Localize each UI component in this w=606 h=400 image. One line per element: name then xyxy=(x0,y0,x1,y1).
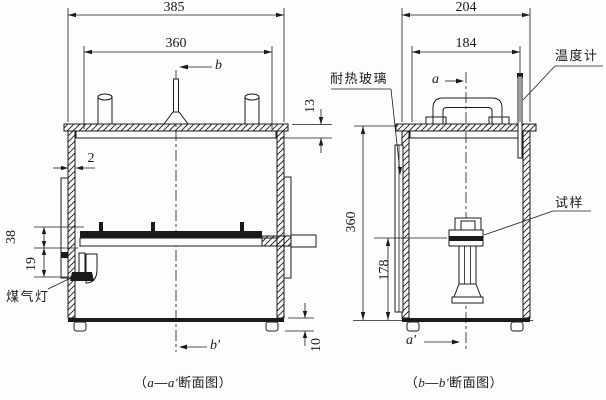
specimen-holder-base xyxy=(452,297,483,303)
vent-pipe-right xyxy=(245,97,259,124)
funnel-stem xyxy=(174,79,179,112)
dim-shelf-drop: 38 xyxy=(5,230,19,244)
dim-wall-thickness: 2 xyxy=(88,152,95,166)
drawing-linework xyxy=(0,0,606,400)
left-view-foot-left xyxy=(74,322,86,331)
left-view-foot-right xyxy=(266,322,278,331)
dim-burner-drop: 19 xyxy=(25,257,39,271)
dim-overall-width-left: 385 xyxy=(164,1,185,15)
left-view-chamber xyxy=(61,70,316,352)
caption-a-s2: a' xyxy=(168,375,178,390)
technical-drawing-combustion-test-chamber: 385 360 b 13 2 38 19 煤气灯 10 b' 204 184 温… xyxy=(0,0,606,400)
label-heat-glass: 耐热玻璃 xyxy=(330,72,388,85)
left-view-left-wall xyxy=(68,131,75,318)
caption-a-s1: a xyxy=(147,375,154,390)
label-thermometer: 温度计 xyxy=(555,49,599,62)
thermometer-leader xyxy=(523,66,555,100)
glass-panel-left-edge xyxy=(61,178,68,278)
shelf-pin-3 xyxy=(240,222,244,231)
dim-inner-width-left: 360 xyxy=(166,37,187,51)
left-view-bottom-plate xyxy=(68,318,284,322)
caption-b-open: （ xyxy=(405,375,419,390)
dim-specimen-center-height: 178 xyxy=(378,260,392,281)
caption-a-dash: — xyxy=(154,375,168,390)
caption-b-rest: 断面图） xyxy=(449,375,503,390)
gas-burner-bracket xyxy=(61,252,68,258)
right-view-bottom-plate xyxy=(402,318,530,322)
right-view-right-wall xyxy=(523,131,530,318)
caption-b-dash: — xyxy=(425,375,439,390)
caption-b-s2: b' xyxy=(439,375,449,390)
caption-a-rest: 断面图） xyxy=(178,375,232,390)
specimen-clamp-notch xyxy=(461,221,475,230)
label-specimen: 试样 xyxy=(555,196,584,209)
specimen-clamp-band xyxy=(449,236,483,241)
dim-inner-height: 360 xyxy=(345,212,359,233)
specimen-strip-holder xyxy=(459,246,476,288)
specimen-holder-flare xyxy=(454,284,481,297)
shelf-board-top xyxy=(80,231,262,238)
shelf-pin-1 xyxy=(99,222,103,231)
right-view-chamber xyxy=(353,72,536,352)
vent-pipe-left xyxy=(98,97,112,124)
left-view-lid xyxy=(64,124,288,131)
section-label-a: a xyxy=(432,73,439,87)
specimen-assembly xyxy=(449,218,483,303)
section-label-b: b xyxy=(215,59,222,73)
dim-foot-height: 10 xyxy=(310,338,324,352)
caption-left-view: （a—a'断面图） xyxy=(134,376,232,389)
vent-pipe-left-top xyxy=(98,94,112,100)
glass-panel-right-edge xyxy=(284,177,291,278)
funnel-base xyxy=(164,112,188,124)
right-view-foot-left xyxy=(407,322,419,331)
section-label-b-prime: b' xyxy=(210,339,220,353)
gas-burner-tube xyxy=(79,253,85,273)
caption-right-view: （b—b'断面图） xyxy=(405,376,503,389)
shelf-wall-bushing xyxy=(262,236,291,246)
caption-b-s1: b xyxy=(418,375,425,390)
vent-pipe-right-top xyxy=(245,94,259,100)
dim-inner-width-right: 184 xyxy=(456,37,477,51)
section-label-a-prime: a' xyxy=(406,334,416,348)
handle-inner xyxy=(443,108,492,125)
shelf-board-bottom xyxy=(80,238,277,246)
right-view-foot-right xyxy=(511,322,523,331)
right-view-lid xyxy=(396,124,536,131)
dim-overall-width-right: 204 xyxy=(456,1,477,15)
shelf-slide-rod xyxy=(291,235,316,247)
label-gas-burner: 煤气灯 xyxy=(6,290,50,303)
dim-lid-stack: 13 xyxy=(304,99,318,113)
shelf-pin-2 xyxy=(151,222,155,231)
left-view-right-wall xyxy=(277,131,284,318)
caption-a-open: （ xyxy=(134,375,148,390)
specimen-leader xyxy=(484,211,553,235)
